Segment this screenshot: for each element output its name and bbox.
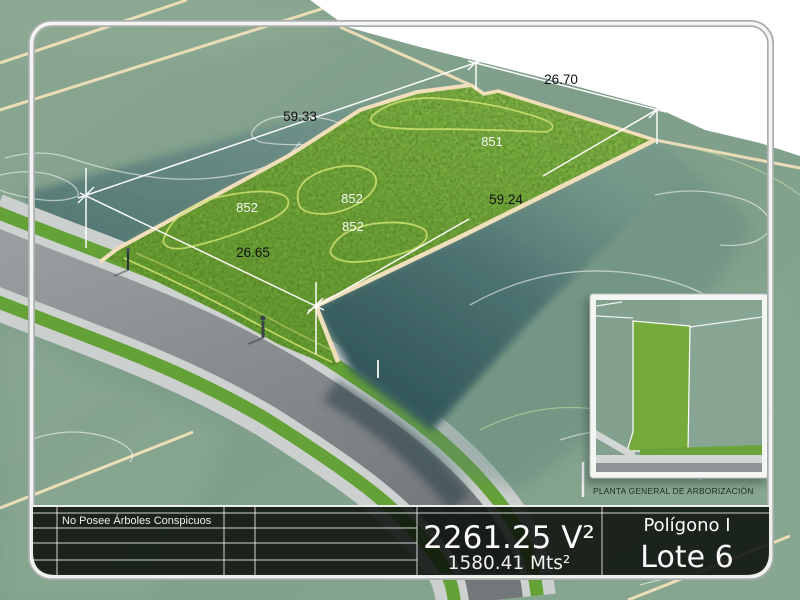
dimension-label-right: 59.24 bbox=[489, 192, 523, 207]
dimension-label-bottom: 26.65 bbox=[236, 245, 270, 260]
info-bar: No Posee Árboles Conspicuos 2261.25 V² 1… bbox=[32, 506, 770, 576]
contour-label-851: 851 bbox=[481, 134, 503, 149]
inset-map: PLANTA GENERAL DE ARBORIZACIÓN bbox=[590, 294, 768, 496]
area-varas: 2261.25 V² bbox=[423, 520, 595, 556]
inset-lot bbox=[627, 321, 690, 451]
dimension-label-top: 26.70 bbox=[544, 72, 578, 87]
lot-name: Lote 6 bbox=[640, 540, 733, 575]
inset-caption: PLANTA GENERAL DE ARBORIZACIÓN bbox=[593, 486, 754, 496]
scene-canvas: 26.70 59.33 59.24 26.65 851 852 852 852 … bbox=[0, 0, 800, 600]
inset-sidewalk bbox=[596, 455, 762, 463]
site-plan-render: 26.70 59.33 59.24 26.65 851 852 852 852 … bbox=[0, 0, 800, 600]
trees-note: No Posee Árboles Conspicuos bbox=[62, 514, 212, 527]
dimension-label-left: 59.33 bbox=[283, 109, 317, 124]
contour-label-852: 852 bbox=[341, 191, 363, 206]
area-meters: 1580.41 Mts² bbox=[448, 553, 571, 574]
zone-name: Polígono I bbox=[643, 515, 730, 536]
contour-label-852: 852 bbox=[342, 219, 364, 234]
contour-label-852: 852 bbox=[236, 200, 258, 215]
